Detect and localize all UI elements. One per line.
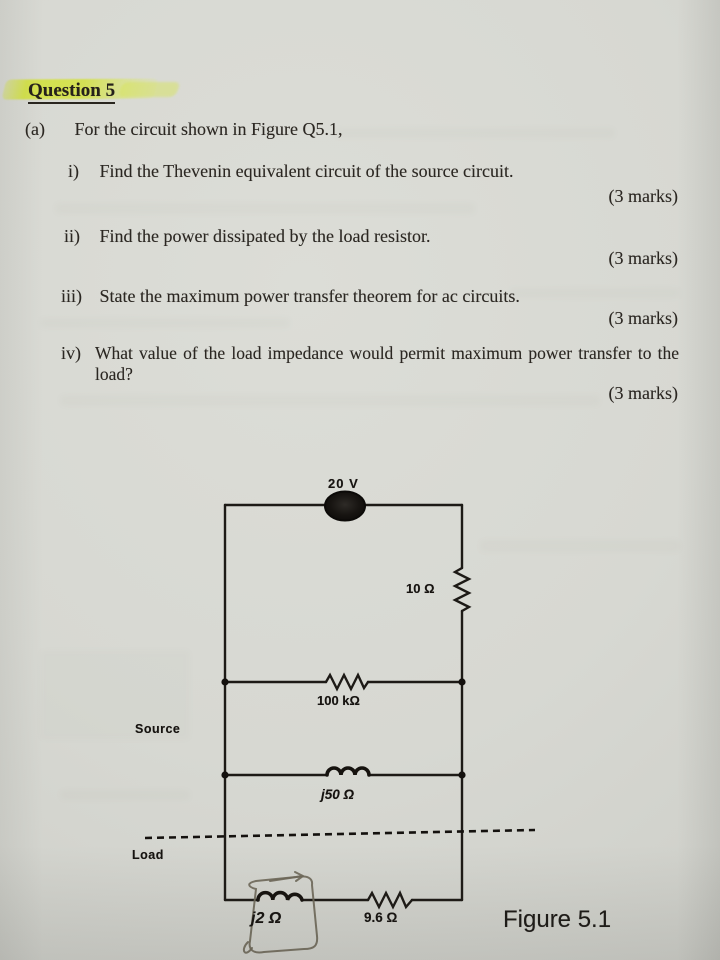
junction-dot [458,678,465,685]
bleedthrough-artifact [60,395,600,406]
item-number: i) [68,161,95,182]
label-region-source: Source [135,722,180,736]
item-number: iii) [61,286,95,307]
resistor-symbol-9.6ohm [368,893,412,907]
item-text: Find the Thevenin equivalent circuit of … [100,161,514,181]
highlighter-swash-tail [117,82,180,97]
figure-caption: Figure 5.1 [503,906,611,934]
bleedthrough-artifact [335,128,615,138]
bleedthrough-artifact [40,318,290,328]
label-inductor-mid: j50 Ω [321,787,354,802]
bleedthrough-artifact [510,288,680,298]
junction-dot [458,771,465,778]
pencil-arrow [270,872,303,881]
junction-dot [221,771,228,778]
label-inductor-load: j2 Ω [251,910,281,928]
part-a-row: (a) For the circuit shown in Figure Q5.1… [25,119,342,140]
item-number: iv) [61,343,81,364]
inductor-symbol-j2 [258,893,302,900]
question-item-i: i) Find the Thevenin equivalent circuit … [68,161,514,182]
item-text: State the maximum power transfer theorem… [100,286,520,306]
question-title: Question 5 [28,80,115,104]
part-a-label: (a) [25,119,70,140]
resistor-symbol-10ohm [455,568,469,611]
label-resistor-top: 10 Ω [406,581,435,596]
label-resistor-load: 9.6 Ω [364,910,397,925]
marks-label: (3 marks) [609,383,678,404]
marks-label: (3 marks) [609,186,678,207]
inductor-symbol-j50 [327,768,369,775]
circuit-diagram [0,440,720,960]
bleedthrough-artifact [55,203,475,214]
marks-label: (3 marks) [609,308,678,329]
junction-dot [221,678,228,685]
label-source-voltage: 20 V [328,476,359,491]
label-resistor-mid: 100 kΩ [317,693,360,708]
label-region-load: Load [132,848,164,862]
part-a-text: For the circuit shown in Figure Q5.1, [75,119,343,139]
question-item-ii: ii) Find the power dissipated by the loa… [64,226,430,247]
question-item-iv-number: iv) [61,343,81,364]
resistor-symbol-100kohm [326,675,368,689]
question-item-iii: iii) State the maximum power transfer th… [61,286,520,307]
question-item-iv-text: What value of the load impedance would p… [95,343,679,385]
item-text: Find the power dissipated by the load re… [100,226,431,246]
marks-label: (3 marks) [609,248,678,269]
source-load-divider [145,830,535,838]
exam-paper-photo: Question 5 (a) For the circuit shown in … [0,0,720,960]
item-number: ii) [64,226,95,247]
